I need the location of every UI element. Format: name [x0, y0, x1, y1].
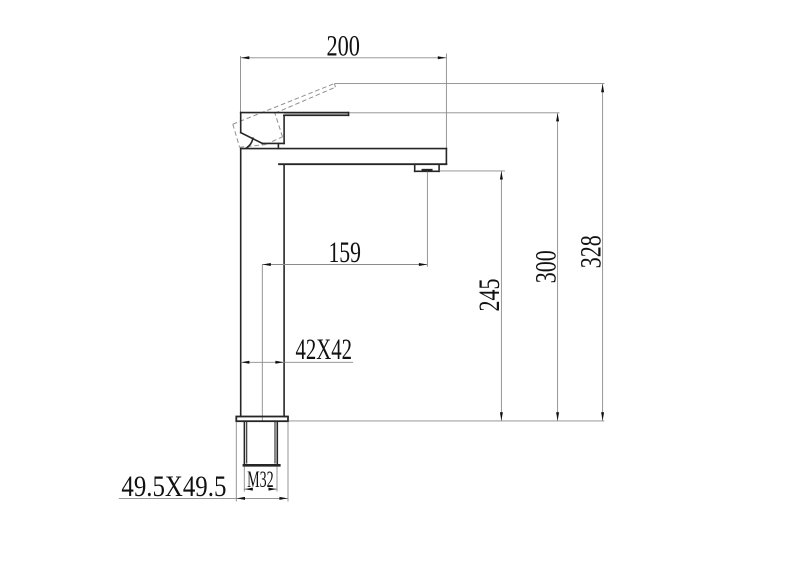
- svg-text:200: 200: [326, 30, 360, 63]
- svg-text:159: 159: [328, 236, 361, 269]
- svg-text:245: 245: [473, 278, 506, 311]
- svg-text:300: 300: [529, 250, 562, 283]
- svg-text:328: 328: [574, 235, 607, 268]
- svg-text:M32: M32: [247, 467, 274, 492]
- svg-text:49.5X49.5: 49.5X49.5: [121, 470, 226, 503]
- svg-text:42X42: 42X42: [296, 333, 353, 366]
